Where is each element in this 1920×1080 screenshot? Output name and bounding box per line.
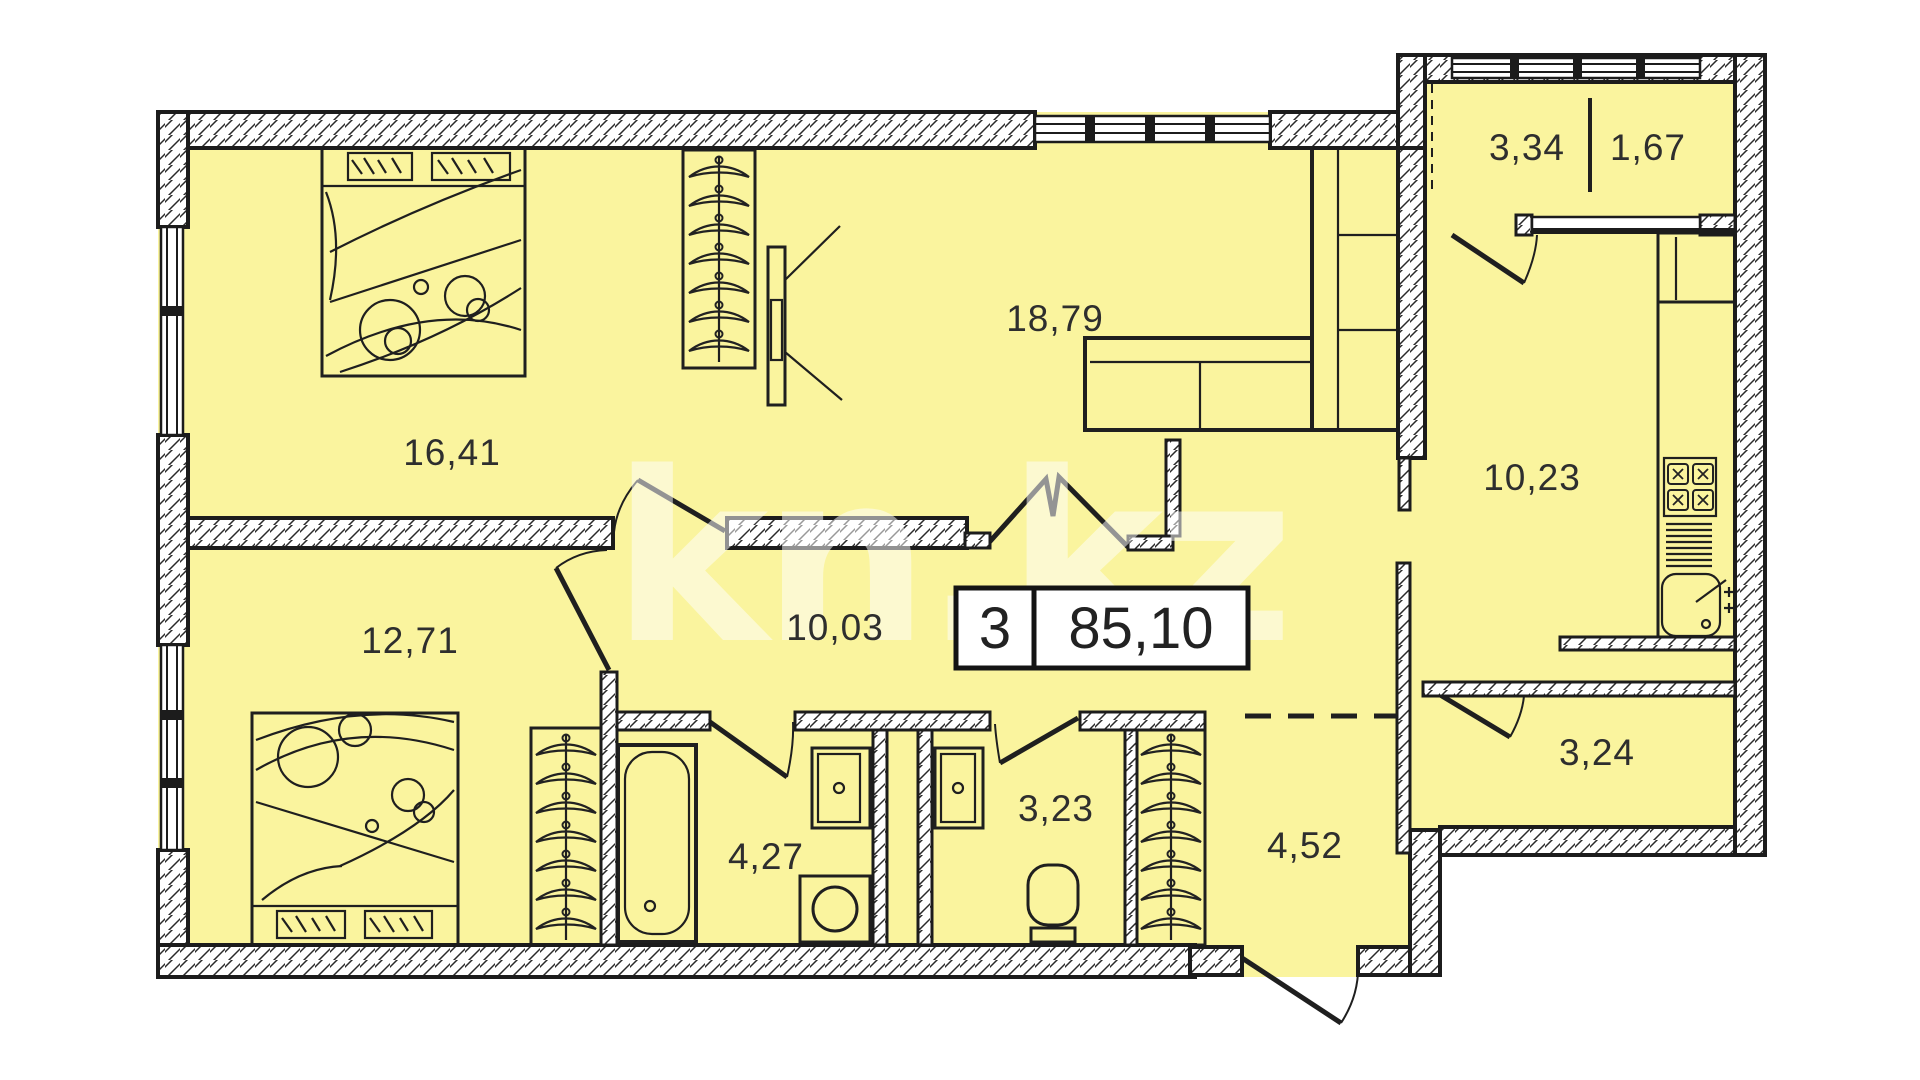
room-area-hall: 10,03: [786, 607, 884, 648]
room-area-entry-niche: 3,24: [1559, 732, 1635, 773]
room-area-balcony-reduced: 1,67: [1610, 127, 1686, 168]
window: [161, 227, 183, 435]
floor-plan-page: kn.kz 16,41 18,79 12,71 10,03 10,23 3,34…: [0, 0, 1920, 1080]
room-area-living-room: 18,79: [1006, 298, 1104, 339]
floor-plan: kn.kz 16,41 18,79 12,71 10,03 10,23 3,34…: [0, 0, 1920, 1080]
room-area-bedroom-1: 16,41: [403, 432, 501, 473]
summary-badge: 3 85,10: [956, 588, 1248, 668]
total-area: 85,10: [1068, 596, 1213, 661]
room-area-kitchen: 10,23: [1483, 457, 1581, 498]
room-area-toilet: 3,23: [1018, 788, 1094, 829]
window: [161, 645, 183, 850]
room-area-bathroom: 4,27: [728, 836, 804, 877]
room-area-balcony-full: 3,34: [1489, 127, 1565, 168]
room-area-bedroom-2: 12,71: [361, 620, 459, 661]
room-count: 3: [979, 596, 1011, 661]
window: [1035, 116, 1270, 142]
room-area-corridor: 4,52: [1267, 825, 1343, 866]
window: [1452, 58, 1700, 78]
